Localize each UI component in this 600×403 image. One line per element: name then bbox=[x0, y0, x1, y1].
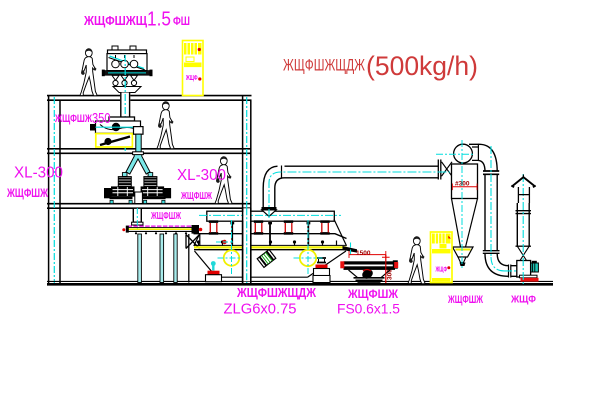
svg-text:ЖЩФШЖ: ЖЩФШЖ bbox=[180, 190, 212, 202]
svg-text:XL-300: XL-300 bbox=[14, 165, 63, 182]
svg-text:ЖЩФШЖ: ЖЩФШЖ bbox=[6, 186, 48, 200]
svg-text:ЖЩФШЖЩДЖ: ЖЩФШЖЩДЖ bbox=[283, 56, 365, 75]
svg-text:ЖЩФШЖ: ЖЩФШЖ bbox=[447, 294, 483, 306]
svg-text:ЖЩФШЖ: ЖЩФШЖ bbox=[347, 287, 398, 301]
svg-text:ЖЩФШЖ: ЖЩФШЖ bbox=[150, 211, 181, 222]
svg-text:ZLG6x0.75: ZLG6x0.75 bbox=[224, 302, 297, 318]
svg-text:ЖЩФ: ЖЩФ bbox=[435, 265, 447, 274]
svg-text:350: 350 bbox=[92, 110, 111, 127]
svg-text:ЖЩФ: ЖЩФ bbox=[185, 73, 197, 82]
svg-text:ЖЩФШЖЩ: ЖЩФШЖЩ bbox=[83, 13, 147, 28]
svg-text:FS0.6x1.5: FS0.6x1.5 bbox=[337, 301, 400, 317]
svg-text:ЖЩФ: ЖЩФ bbox=[510, 294, 536, 306]
svg-text:XL-300: XL-300 bbox=[177, 167, 226, 184]
svg-text:(500kg/h): (500kg/h) bbox=[366, 51, 478, 81]
svg-text:ЖЩФШЖЩДЖ: ЖЩФШЖЩДЖ bbox=[236, 286, 316, 300]
svg-text:1.5: 1.5 bbox=[147, 9, 171, 31]
svg-text:1500: 1500 bbox=[356, 250, 371, 257]
svg-text:ЖЩФШЖ: ЖЩФШЖ bbox=[54, 113, 92, 125]
svg-text:ФШ: ФШ bbox=[173, 14, 190, 28]
